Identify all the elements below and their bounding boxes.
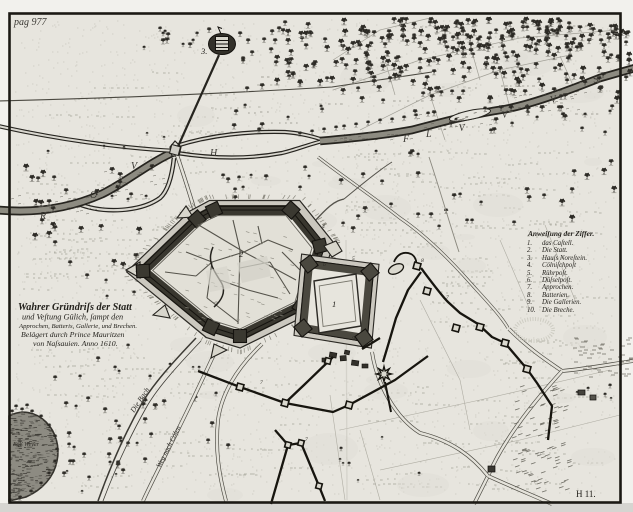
svg-text:5.: 5.: [527, 270, 532, 277]
svg-text:7.: 7.: [527, 284, 532, 291]
svg-text:9.: 9.: [527, 299, 532, 306]
svg-text:8.: 8.: [527, 292, 532, 299]
svg-text:8: 8: [421, 258, 424, 264]
svg-text:Approchen.: Approchen.: [541, 284, 574, 291]
svg-text:Belägert durch Prince Mauritze: Belägert durch Prince Mauritzen: [21, 330, 125, 339]
svg-text:7: 7: [260, 380, 263, 386]
svg-text:F: F: [402, 134, 410, 145]
svg-text:Anweiſung der Ziffer.: Anweiſung der Ziffer.: [527, 229, 594, 238]
svg-text:10.: 10.: [527, 307, 536, 314]
svg-text:Die Gallerien.: Die Gallerien.: [541, 299, 582, 306]
svg-text:5: 5: [352, 256, 355, 262]
svg-text:pag 977: pag 977: [13, 17, 48, 28]
svg-text:Rührpoſt.: Rührpoſt.: [541, 270, 568, 277]
svg-text:Düſselpoſt.: Düſselpoſt.: [541, 277, 572, 284]
svg-text:6.: 6.: [527, 277, 532, 284]
svg-text:H: H: [209, 148, 218, 159]
svg-text:Die Statt.: Die Statt.: [541, 247, 568, 254]
svg-text:7: 7: [305, 437, 308, 443]
svg-text:9: 9: [352, 336, 355, 342]
svg-text:Wahrer Gründriſs der Statt: Wahrer Gründriſs der Statt: [18, 302, 133, 313]
svg-text:Böß Weyer: Böß Weyer: [13, 441, 40, 448]
svg-text:7: 7: [446, 295, 449, 301]
svg-text:4.: 4.: [527, 262, 532, 269]
svg-text:3.: 3.: [526, 255, 532, 262]
svg-text:Die Breche.: Die Breche.: [541, 307, 575, 314]
svg-text:Batterien.: Batterien.: [542, 292, 569, 299]
svg-text:Hauſs Noreſtein.: Hauſs Noreſtein.: [541, 255, 587, 262]
svg-text:4: 4: [322, 223, 325, 230]
svg-text:L: L: [425, 129, 432, 140]
svg-text:von Naſsauien. Anno 1610.: von Naſsauien. Anno 1610.: [33, 339, 118, 348]
svg-text:6: 6: [323, 262, 326, 268]
svg-text:1: 1: [332, 299, 336, 309]
svg-text:Approchen, Batteris, Gallerie,: Approchen, Batteris, Gallerie, und Brech…: [18, 323, 137, 330]
svg-text:3.: 3.: [200, 46, 207, 56]
svg-text:das Caſtell.: das Caſtell.: [542, 240, 574, 247]
svg-text:Cölniſchpoſt: Cölniſchpoſt: [542, 262, 577, 269]
svg-text:und Veſtung Gülich, ſampt den: und Veſtung Gülich, ſampt den: [22, 313, 123, 322]
svg-text:2.: 2.: [527, 247, 532, 254]
svg-text:H 11.: H 11.: [576, 489, 596, 499]
svg-text:1.: 1.: [527, 240, 532, 247]
